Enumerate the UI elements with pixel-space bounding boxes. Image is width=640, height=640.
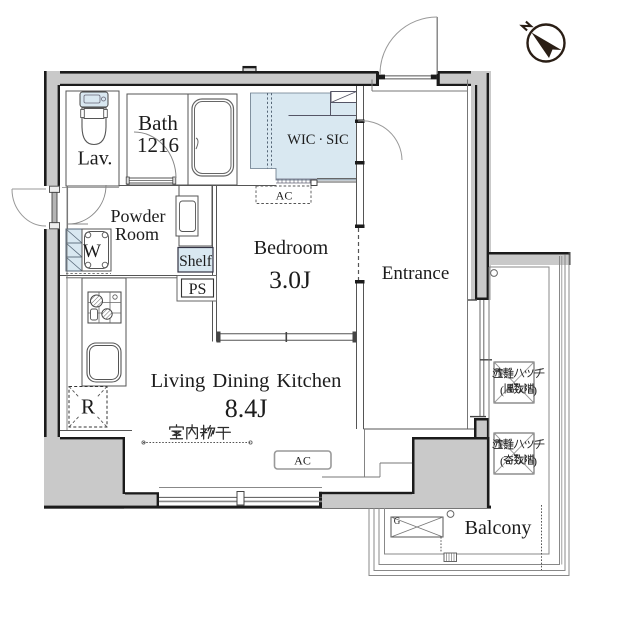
svg-text:): )	[533, 454, 537, 468]
svg-text:G: G	[394, 516, 401, 526]
svg-text:W: W	[83, 241, 101, 262]
svg-text:Room: Room	[115, 224, 159, 244]
svg-text:(: (	[500, 454, 504, 468]
svg-text:Bath: Bath	[138, 111, 178, 135]
svg-text:Living Dining Kitchen: Living Dining Kitchen	[151, 370, 342, 392]
svg-text:Bedroom: Bedroom	[254, 237, 329, 259]
svg-text:R: R	[81, 395, 95, 419]
svg-text:Entrance: Entrance	[382, 263, 450, 284]
svg-text:1216: 1216	[137, 133, 179, 157]
svg-text:AC: AC	[294, 454, 311, 468]
svg-text:8.4J: 8.4J	[225, 394, 268, 423]
svg-text:Lav.: Lav.	[78, 148, 113, 170]
svg-text:): )	[533, 383, 537, 397]
svg-text:PS: PS	[189, 281, 207, 298]
svg-text:(: (	[500, 383, 504, 397]
svg-text:3.0J: 3.0J	[269, 265, 311, 294]
svg-text:WIC · SIC: WIC · SIC	[287, 132, 348, 148]
svg-text:AC: AC	[276, 189, 293, 203]
svg-text:Balcony: Balcony	[465, 517, 532, 539]
svg-text:Shelf: Shelf	[179, 253, 213, 270]
svg-text:Powder: Powder	[111, 206, 166, 226]
